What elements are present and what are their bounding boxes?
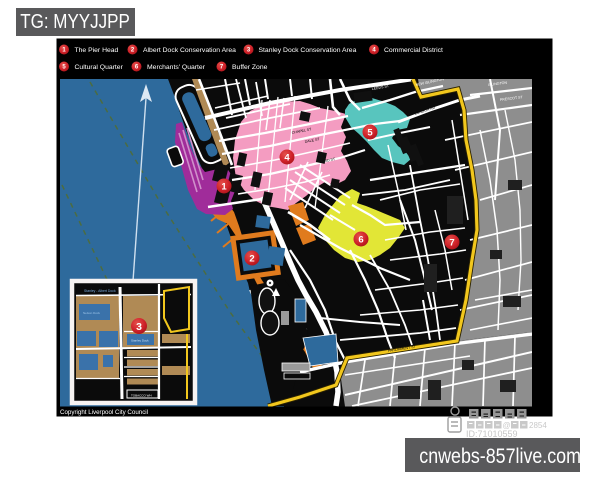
svg-text:Merchants' Quarter: Merchants' Quarter <box>147 64 206 71</box>
svg-text:The Pier Head: The Pier Head <box>75 47 119 54</box>
svg-text:Albert Dock Conservation Area: Albert Dock Conservation Area <box>143 47 236 54</box>
svg-text:TOBACCO WH: TOBACCO WH <box>131 394 152 398</box>
svg-text:7: 7 <box>449 238 454 249</box>
svg-text:2854: 2854 <box>529 421 547 430</box>
svg-text:6: 6 <box>358 235 363 246</box>
svg-text:Nelson Dock: Nelson Dock <box>83 311 101 315</box>
svg-text:Copyright Liverpool City Counc: Copyright Liverpool City Council <box>60 409 148 416</box>
svg-text:5: 5 <box>367 128 373 139</box>
svg-text:1: 1 <box>221 182 227 193</box>
svg-text:4: 4 <box>284 153 290 164</box>
svg-text:Stanley Dock: Stanley Dock <box>131 339 149 343</box>
svg-text:Cultural Quarter: Cultural Quarter <box>75 64 124 71</box>
svg-text:2: 2 <box>249 254 254 265</box>
svg-text:Commercial District: Commercial District <box>384 47 443 54</box>
svg-text:3: 3 <box>136 321 142 333</box>
svg-text:Buffer Zone: Buffer Zone <box>232 64 268 71</box>
svg-text:Stanley - Albert Dock: Stanley - Albert Dock <box>84 289 116 293</box>
svg-text:Stanley Dock Conservation Area: Stanley Dock Conservation Area <box>259 47 357 54</box>
